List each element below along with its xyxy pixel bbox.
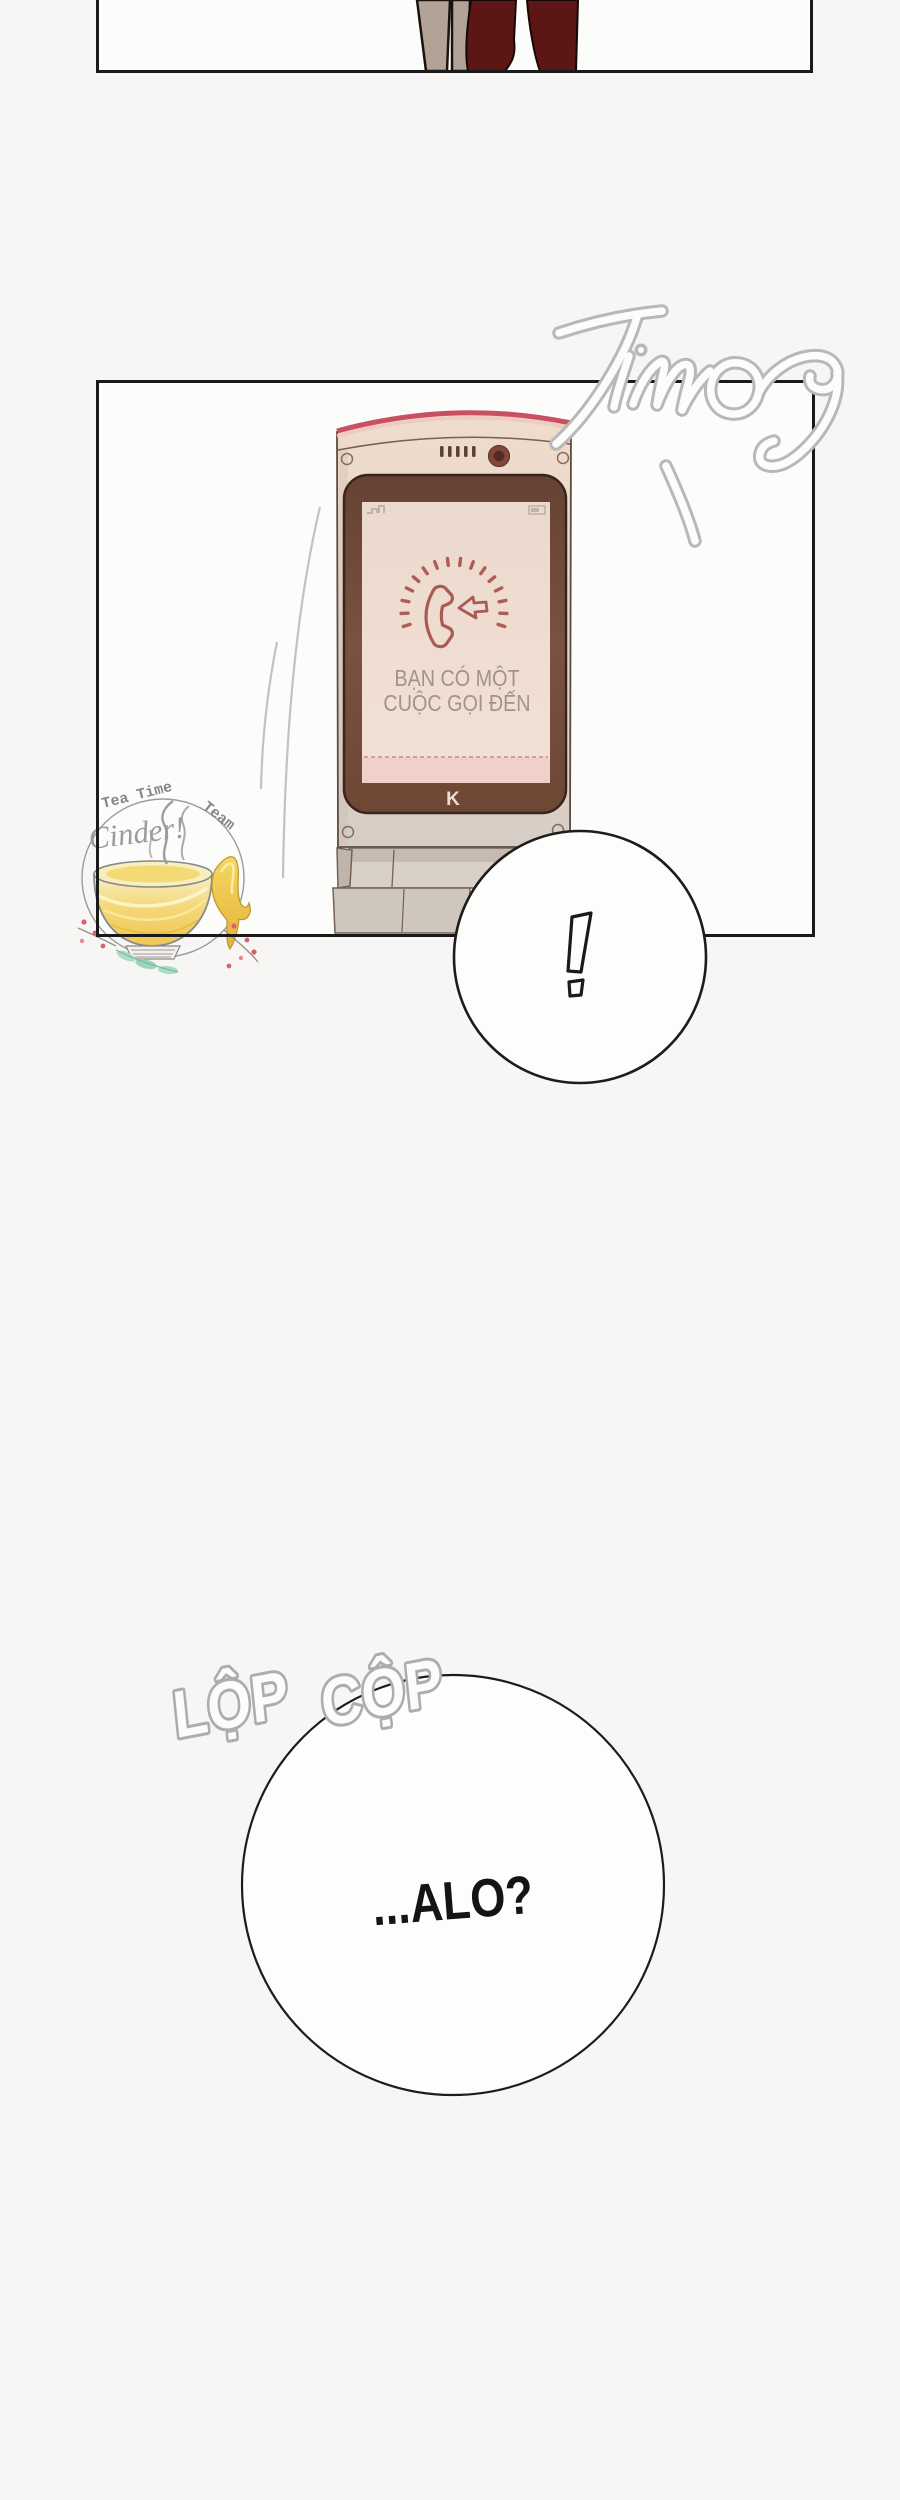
svg-text:...ALO?: ...ALO?	[370, 1864, 536, 1937]
svg-text:K: K	[446, 789, 460, 810]
svg-text:CUỘC GỌI ĐẾN: CUỘC GỌI ĐẾN	[383, 690, 530, 717]
svg-text:BẠN CÓ MỘT: BẠN CÓ MỘT	[394, 665, 519, 692]
